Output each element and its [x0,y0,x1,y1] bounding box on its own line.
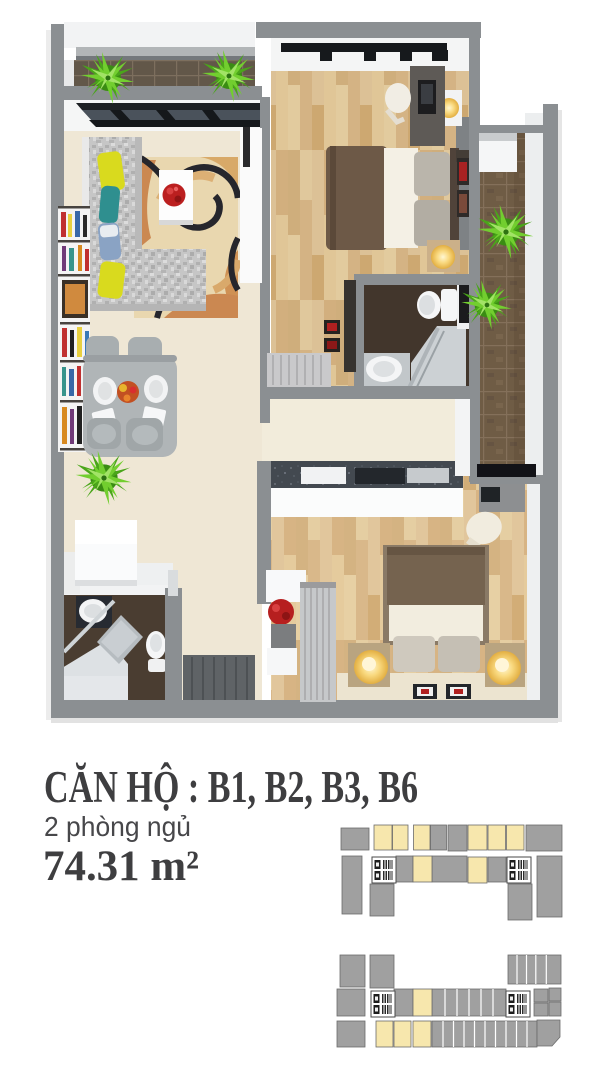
svg-text:74.31 m²: 74.31 m² [43,843,199,890]
svg-text:2 phòng ngủ: 2 phòng ngủ [44,811,191,842]
svg-text:CĂN HỘ : B1, B2, B3, B6: CĂN HỘ : B1, B2, B3, B6 [44,762,418,812]
